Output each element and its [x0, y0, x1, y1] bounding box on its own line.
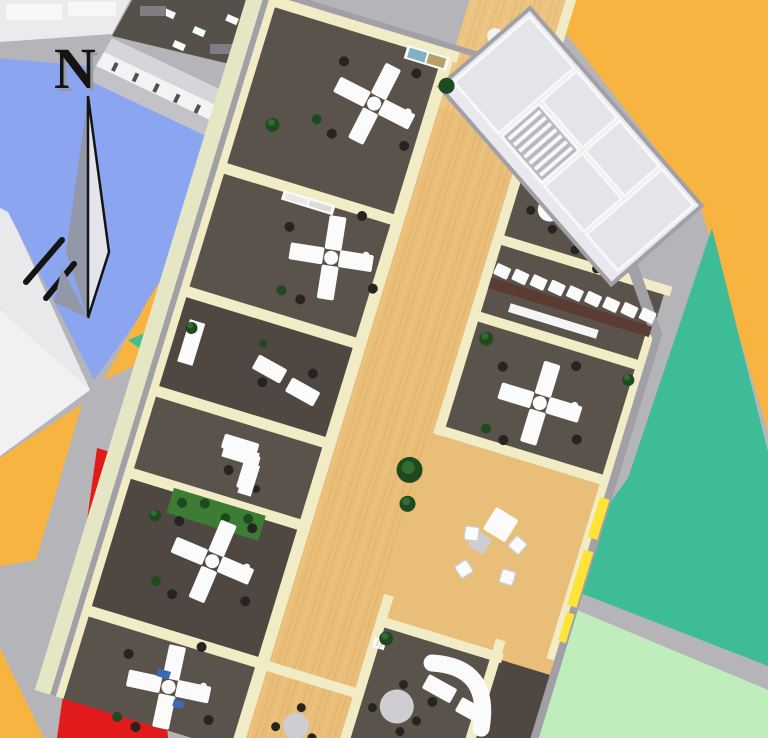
compass-n-label: N [54, 36, 96, 101]
roof-panel [68, 2, 116, 16]
roof-structure [140, 6, 166, 16]
roof-panel [6, 4, 62, 20]
lounge-chair [499, 569, 516, 586]
floorplan-scene: N N [0, 0, 768, 738]
floorplan-3d-viewport[interactable]: N N [0, 0, 768, 738]
lounge-chair [464, 526, 480, 542]
